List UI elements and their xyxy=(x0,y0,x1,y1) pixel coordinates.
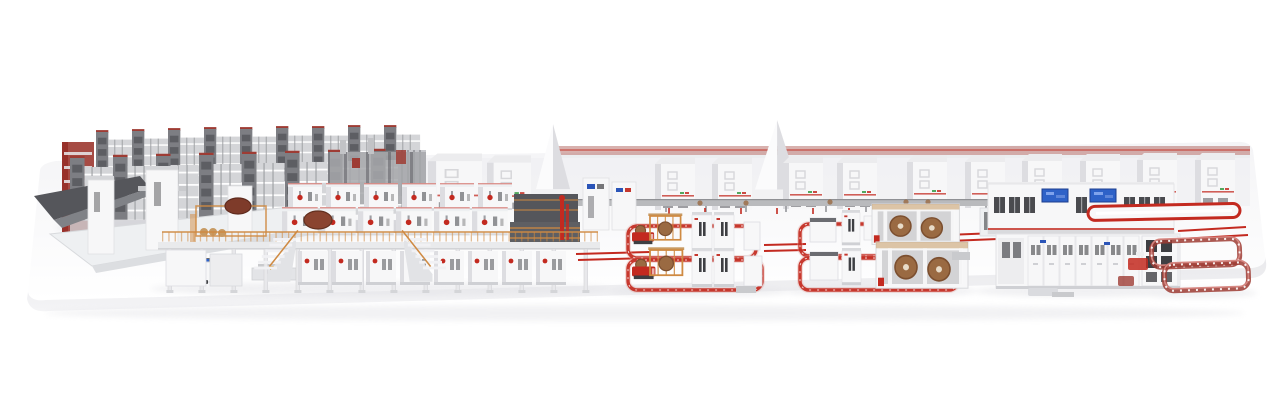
elevated-outfeed-beam xyxy=(1088,203,1240,220)
production-line-illustration xyxy=(0,0,1280,405)
under-deck-machines xyxy=(166,250,566,286)
scene-render xyxy=(0,0,1280,405)
dry-end-converting-line xyxy=(980,182,1180,297)
